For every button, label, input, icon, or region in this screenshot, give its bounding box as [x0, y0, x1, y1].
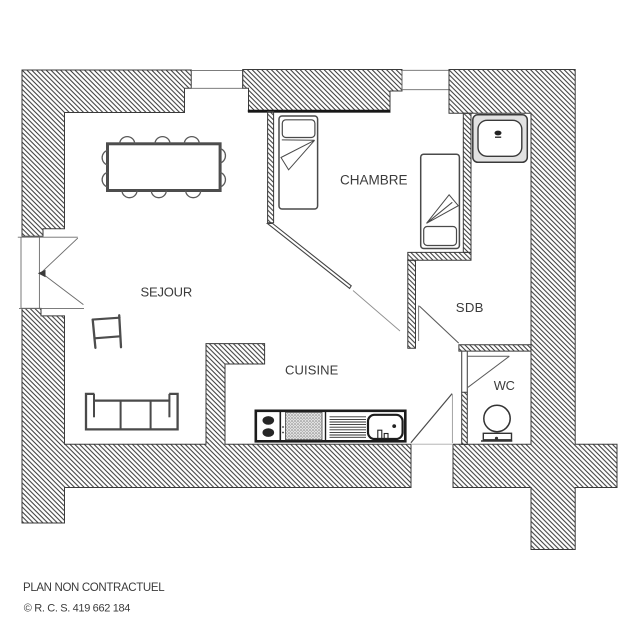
- svg-text:© R. C. S. 419 662 184: © R. C. S. 419 662 184: [24, 603, 130, 615]
- svg-text:CHAMBRE: CHAMBRE: [340, 173, 408, 188]
- svg-text:WC: WC: [494, 378, 515, 393]
- svg-text:SEJOUR: SEJOUR: [141, 285, 193, 300]
- svg-text:PLAN NON CONTRACTUEL: PLAN NON CONTRACTUEL: [23, 582, 165, 594]
- svg-text:CUISINE: CUISINE: [285, 363, 339, 378]
- svg-text:SDB: SDB: [456, 300, 484, 315]
